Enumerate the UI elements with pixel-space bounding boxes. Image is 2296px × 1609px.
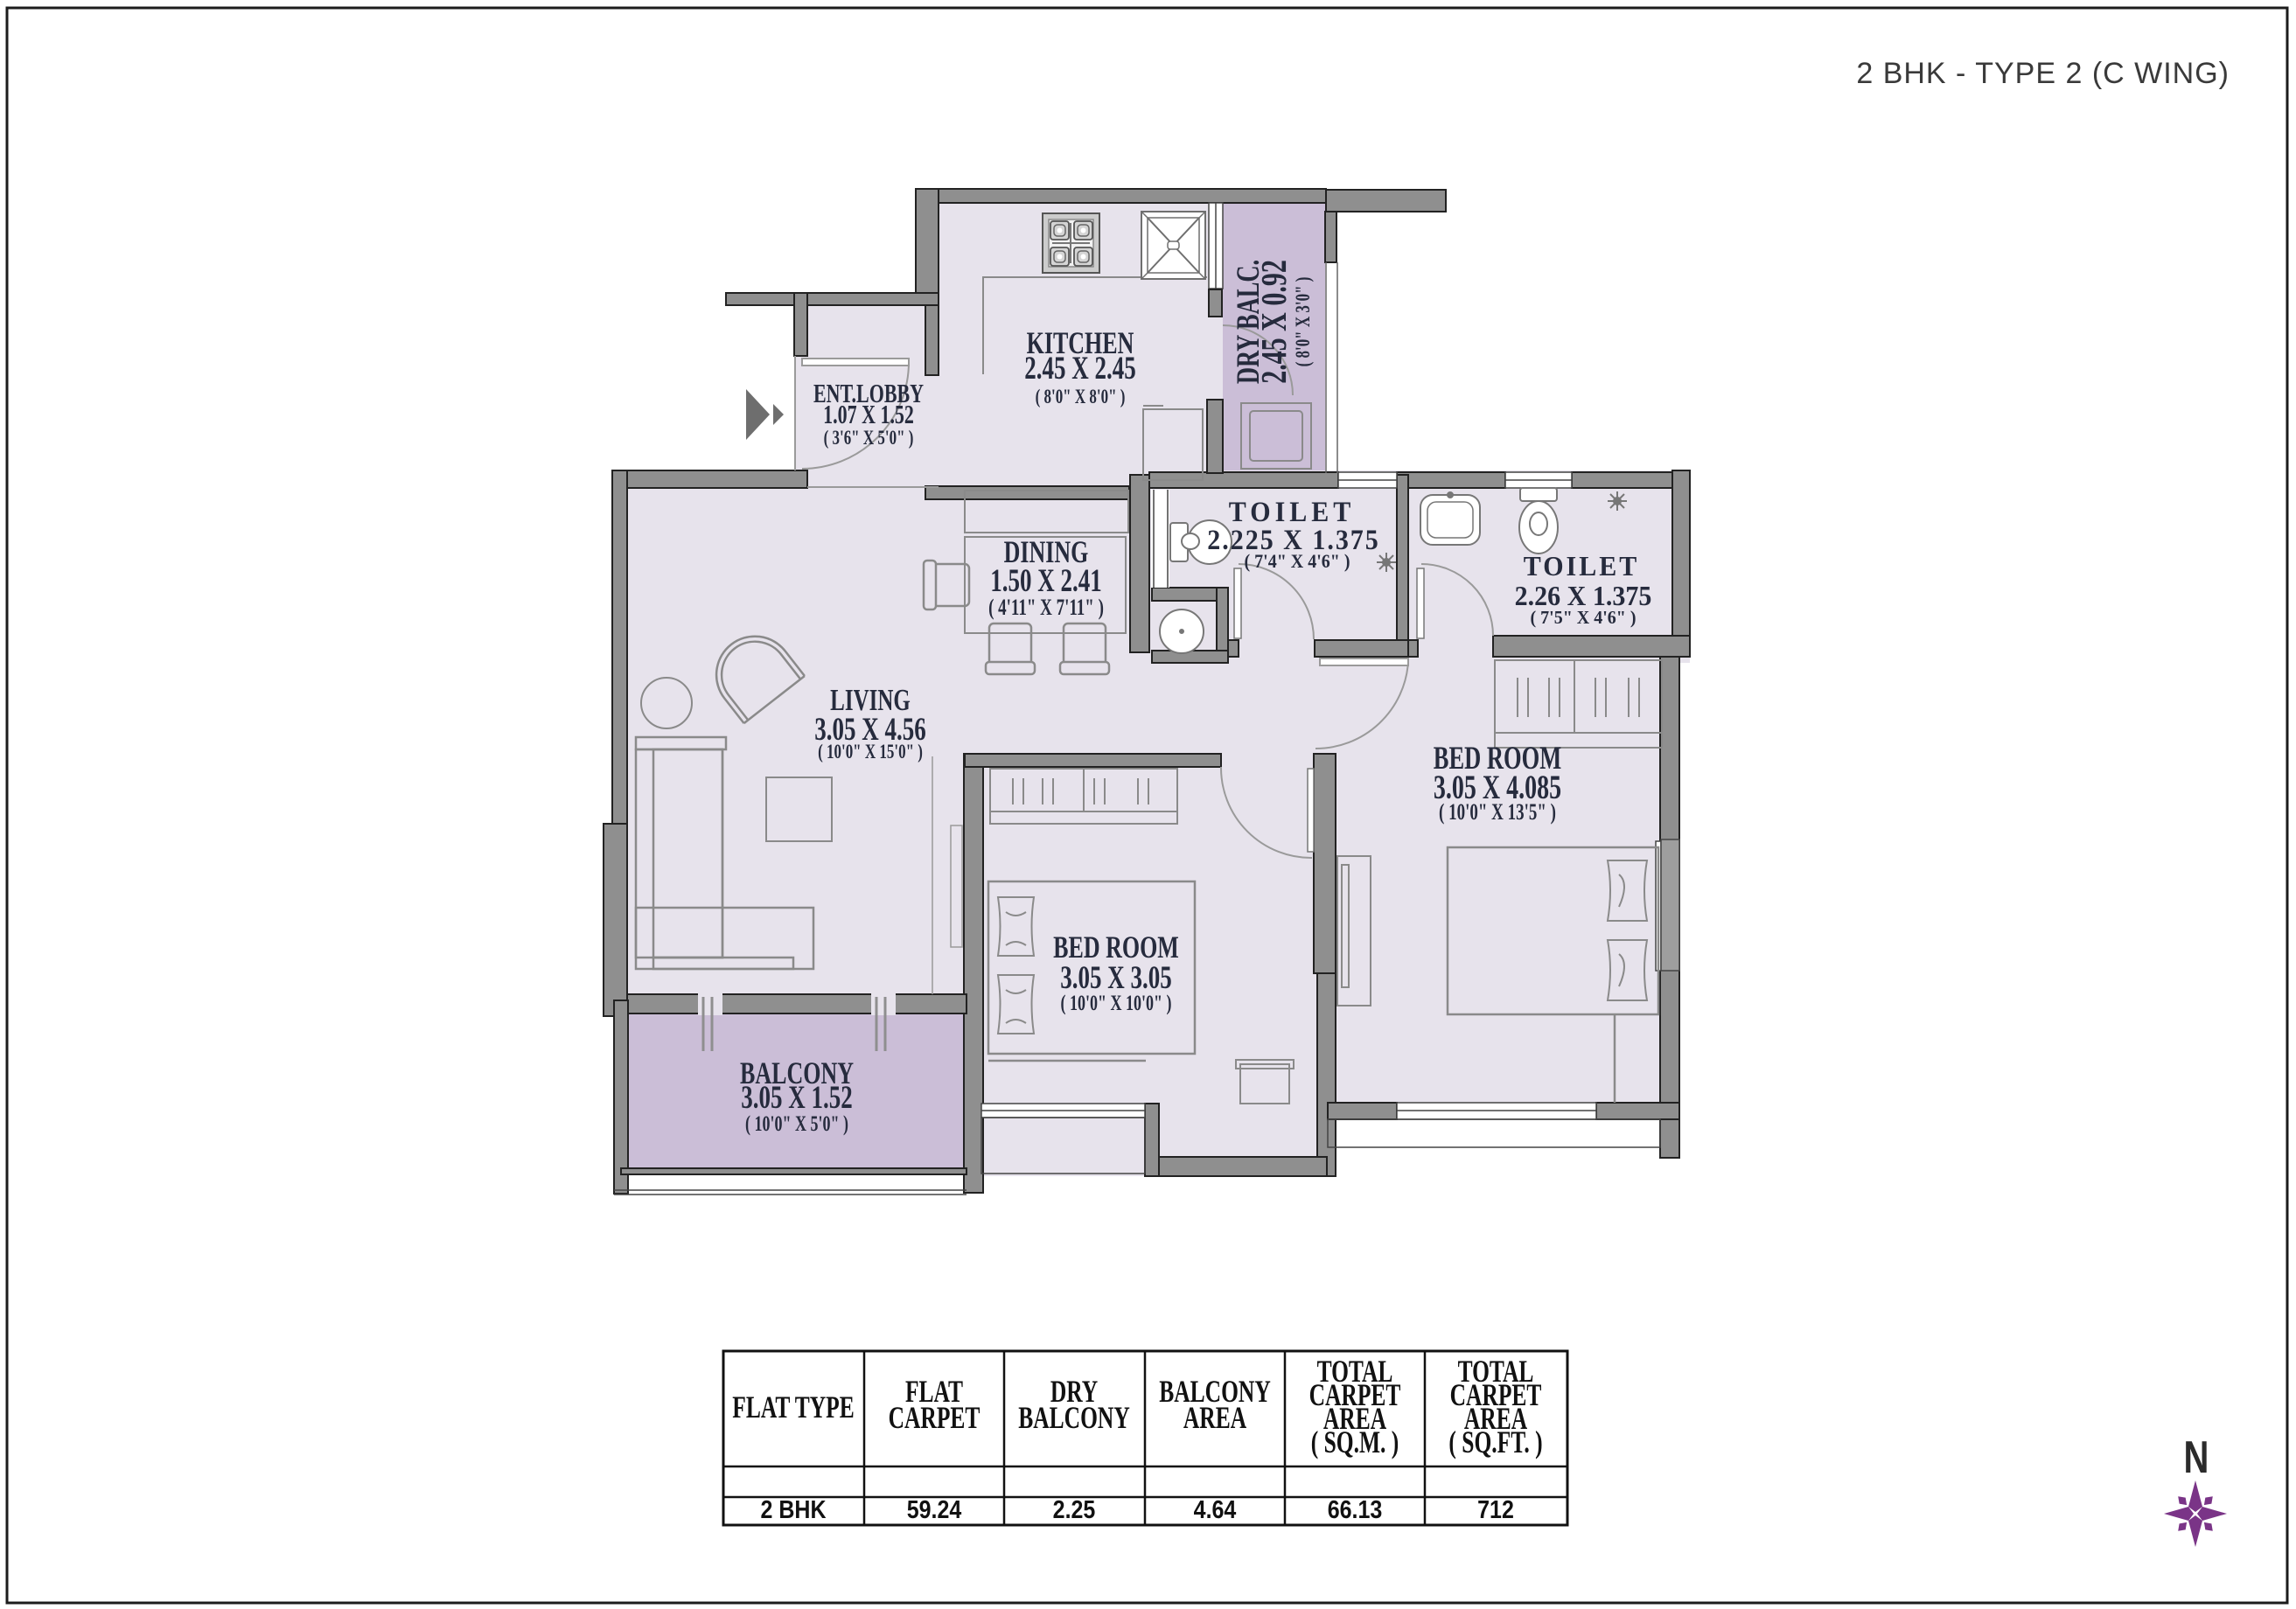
svg-text:1.07 X 1.52: 1.07 X 1.52	[823, 400, 914, 429]
svg-text:712: 712	[1477, 1495, 1514, 1523]
svg-text:4.64: 4.64	[1194, 1495, 1237, 1523]
svg-text:( 8'0" X 8'0" ): ( 8'0" X 8'0" )	[1036, 387, 1126, 408]
svg-text:CARPET: CARPET	[889, 1400, 981, 1435]
svg-text:AREA: AREA	[1183, 1400, 1247, 1435]
svg-text:2.25: 2.25	[1053, 1495, 1096, 1523]
svg-text:2.26 X 1.375: 2.26 X 1.375	[1515, 580, 1652, 611]
svg-text:3.05 X 1.52: 3.05 X 1.52	[741, 1080, 852, 1116]
svg-text:( 7'4" X 4'6" ): ( 7'4" X 4'6" )	[1244, 550, 1350, 572]
svg-text:BALCONY: BALCONY	[1018, 1400, 1129, 1435]
svg-text:1.50 X 2.41: 1.50 X 2.41	[990, 563, 1101, 599]
svg-text:59.24: 59.24	[907, 1495, 962, 1523]
svg-text:2.45 X 2.45: 2.45 X 2.45	[1024, 351, 1135, 387]
svg-text:N: N	[2184, 1431, 2209, 1482]
svg-text:( 10'0" X 13'5" ): ( 10'0" X 13'5" )	[1439, 799, 1556, 825]
svg-text:( 8'0" X 3'0" ): ( 8'0" X 3'0" )	[1292, 277, 1314, 367]
svg-text:( 10'0" X 10'0" ): ( 10'0" X 10'0" )	[1061, 991, 1172, 1014]
svg-text:2 BHK - TYPE 2 (C WING): 2 BHK - TYPE 2 (C WING)	[1856, 57, 2230, 90]
svg-text:( SQ.M. ): ( SQ.M. )	[1311, 1424, 1399, 1459]
svg-text:TOILET: TOILET	[1524, 550, 1639, 582]
svg-text:( 7'5" X 4'6" ): ( 7'5" X 4'6" )	[1530, 609, 1636, 629]
svg-text:( SQ.FT. ): ( SQ.FT. )	[1448, 1424, 1542, 1459]
svg-text:FLAT TYPE: FLAT TYPE	[732, 1390, 854, 1424]
svg-text:( 3'6" X 5'0" ): ( 3'6" X 5'0" )	[824, 428, 914, 449]
svg-text:( 4'11" X 7'11" ): ( 4'11" X 7'11" )	[988, 595, 1104, 620]
svg-text:2.45 X 0.92: 2.45 X 0.92	[1253, 260, 1294, 384]
svg-text:( 10'0" X 15'0" ): ( 10'0" X 15'0" )	[818, 742, 923, 763]
svg-text:2 BHK: 2 BHK	[760, 1495, 827, 1523]
svg-text:66.13: 66.13	[1328, 1495, 1383, 1523]
svg-text:( 10'0" X 5'0" ): ( 10'0" X 5'0" )	[745, 1111, 848, 1135]
